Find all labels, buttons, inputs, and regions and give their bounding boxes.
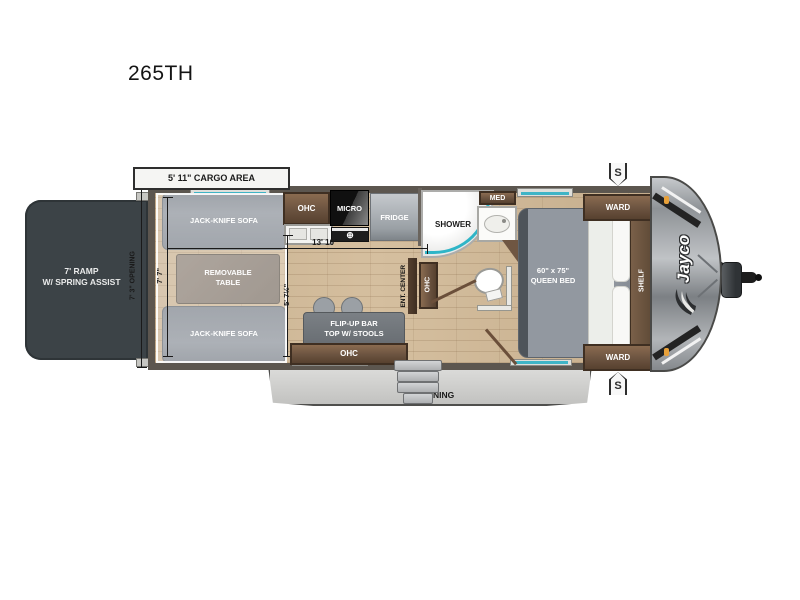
stabilizer-jack-icon: S: [609, 163, 627, 186]
step: [397, 371, 439, 382]
ward-rear-label: WARD: [585, 353, 651, 363]
shelf-label: SHELF: [637, 256, 646, 306]
floorplan-canvas: 265TH 16' AWNING 7' RAMP W/ SPRING ASSIS…: [0, 0, 800, 600]
bar-overhead-cabinet: OHC: [290, 343, 408, 365]
cargo-area-callout: 5' 11" CARGO AREA: [133, 167, 290, 190]
entertainment-center: [408, 258, 417, 314]
cargo-area-label: 5' 11" CARGO AREA: [168, 173, 255, 185]
wardrobe-front: WARD: [583, 194, 653, 221]
front-cap: Jayco: [650, 176, 722, 372]
wardrobe-rear: WARD: [583, 344, 653, 371]
microwave: MICRO: [330, 190, 369, 226]
bar-ohc-label: OHC: [292, 349, 406, 359]
model-title: 265TH: [128, 62, 194, 86]
bath-ohc-label: OHC: [423, 265, 432, 305]
partition-wall: [477, 305, 512, 311]
step: [394, 360, 442, 371]
opening-dim-label: 7' 3" OPENING: [128, 216, 137, 336]
dimension-line-opening: [141, 188, 142, 368]
kitchen-overhead-cabinet: OHC: [283, 192, 330, 225]
table-label: REMOVABLE TABLE: [176, 268, 280, 288]
ramp-label: 7' RAMP W/ SPRING ASSIST: [29, 266, 134, 288]
sofa-rear-label: JACK-KNIFE SOFA: [162, 329, 286, 339]
bed-pillow: [612, 214, 630, 282]
med-label: MED: [481, 194, 514, 203]
step: [403, 393, 433, 404]
length-dim-label: 13' 10": [280, 238, 370, 248]
fridge-label: FRIDGE: [371, 213, 418, 223]
brand-logo: Jayco: [664, 221, 704, 331]
toilet-seat: [485, 288, 503, 302]
stabilizer-jack-letter: S: [611, 163, 625, 186]
brand-logo-text: Jayco: [674, 235, 694, 283]
stabilizer-jack-letter: S: [611, 372, 625, 395]
window: [510, 359, 572, 366]
bed-label: 60" x 75" QUEEN BED: [508, 266, 598, 286]
kitchen-ohc-label: OHC: [285, 204, 328, 214]
eagle-icon: [671, 287, 697, 317]
hitch-coupler: [755, 274, 762, 281]
cargo-height-dim-label: 7' 7": [155, 236, 165, 316]
window: [517, 188, 573, 197]
shower-label: SHOWER: [425, 220, 481, 230]
toilet: [472, 268, 508, 304]
marker-light: [664, 348, 669, 356]
flip-up-bar: FLIP-UP BAR TOP W/ STOOLS: [303, 312, 405, 345]
window-glass: [514, 361, 568, 364]
bathroom-sink: [477, 206, 517, 242]
sofa-front-label: JACK-KNIFE SOFA: [162, 216, 286, 226]
dimension-line-cargo-height: [167, 197, 168, 357]
marker-light: [664, 196, 669, 204]
ward-front-label: WARD: [585, 203, 651, 213]
entry-steps: [394, 358, 440, 404]
microwave-label: MICRO: [331, 204, 368, 214]
bar-label: FLIP-UP BAR TOP W/ STOOLS: [304, 319, 404, 339]
stabilizer-jack-icon: S: [609, 372, 627, 395]
aisle-dim-label: 5' 7½": [282, 255, 292, 335]
refrigerator: FRIDGE: [370, 193, 419, 241]
step: [397, 382, 439, 393]
propane-cover: [721, 262, 742, 298]
medicine-cabinet: MED: [479, 191, 516, 205]
window-glass: [521, 192, 569, 195]
sink-basin: [484, 215, 510, 233]
faucet-icon: [502, 219, 506, 223]
